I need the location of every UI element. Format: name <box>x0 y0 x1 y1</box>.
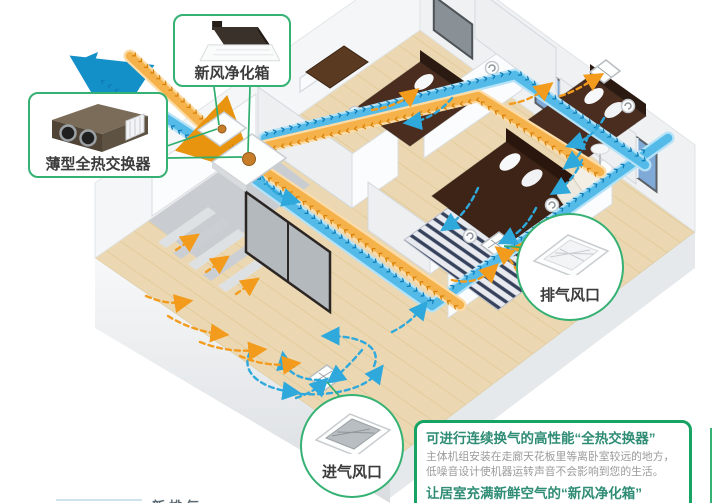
brochure-diagram: ››››››››››››››››››››››››››››››››››››››››… <box>0 0 726 503</box>
cropped-box-edge <box>710 428 712 503</box>
fresh-air-unit-icon <box>182 19 282 65</box>
info-body: 主体机组安装在走廊天花板里等离卧室较远的地方， 低噪音设计使机器运转声音不会影响… <box>426 450 680 481</box>
exhaust-vent-icon <box>524 223 616 275</box>
info-body-line-2: 低噪音设计使机器运转声音不会影响到您的生活。 <box>426 466 664 478</box>
info-box: 可进行连续换气的高性能“全热交换器” 主体机组安装在走廊天花板里等离卧室较远的地… <box>414 420 692 503</box>
callout-heat-exchanger: 薄型全热交换器 <box>28 92 168 178</box>
intake-vent-label: 进气风口 <box>322 461 382 482</box>
legend-line-fragment <box>56 499 142 501</box>
callout-exhaust-vent: 排气风口 <box>516 213 624 321</box>
fresh-air-box-label: 新风净化箱 <box>194 65 269 82</box>
exit-arrow <box>84 52 98 70</box>
intake-vent-icon <box>308 404 396 454</box>
info-heading-1: 可进行连续换气的高性能“全热交换器” <box>426 430 680 448</box>
info-heading-2: 让居室充满新鲜空气的“新风净化箱” <box>426 485 680 503</box>
heat-exchanger-icon <box>36 98 160 156</box>
legend-text-fragment: 新排气 <box>152 496 203 503</box>
heat-exchanger-label: 薄型全热交换器 <box>45 156 150 173</box>
exhaust-vent-label: 排气风口 <box>540 284 600 305</box>
callout-intake-vent: 进气风口 <box>300 394 404 498</box>
callout-fresh-air-box: 新风净化箱 <box>173 14 291 87</box>
info-body-line-1: 主体机组安装在走廊天花板里等离卧室较远的地方， <box>426 451 674 463</box>
